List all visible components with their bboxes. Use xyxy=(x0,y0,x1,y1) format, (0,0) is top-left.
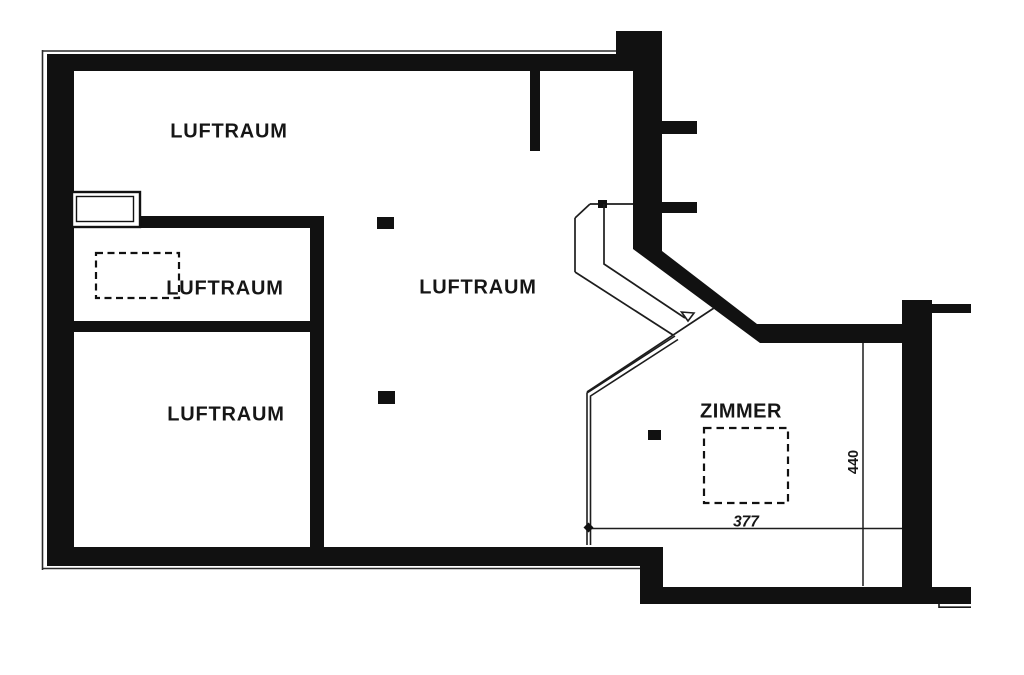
svg-text:LUFTRAUM: LUFTRAUM xyxy=(167,404,284,426)
svg-text:LUFTRAUM: LUFTRAUM xyxy=(170,121,287,143)
svg-text:LUFTRAUM: LUFTRAUM xyxy=(166,278,283,300)
svg-text:ZIMMER: ZIMMER xyxy=(700,401,782,423)
svg-text:440: 440 xyxy=(846,450,862,474)
svg-text:LUFTRAUM: LUFTRAUM xyxy=(419,277,536,299)
svg-text:377: 377 xyxy=(733,514,760,531)
